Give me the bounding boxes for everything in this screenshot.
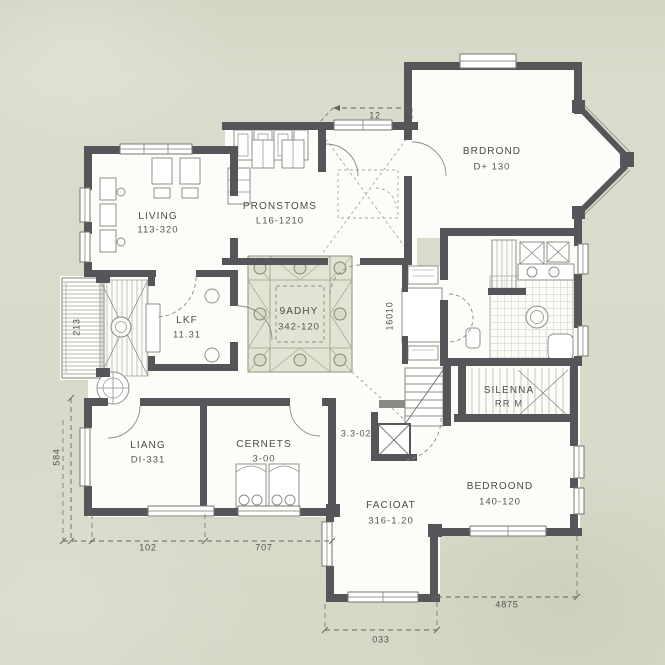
room-label-living: LIVING <box>138 212 177 222</box>
dim-left-side: 584 <box>53 448 62 465</box>
room-dims-courtyard: 342-120 <box>278 322 320 332</box>
stair-area-label: 3.3-02 <box>341 430 371 439</box>
room-dims-facioat: 316-1.20 <box>368 516 414 526</box>
room-label-lkf: LKF <box>176 316 198 326</box>
room-label-facioat: FACIOAT <box>366 501 416 511</box>
room-label-courtyard: 9ADHY <box>280 307 319 317</box>
room-dims-bedroond: 140-120 <box>479 497 521 507</box>
room-dims-lkf: 11.31 <box>173 330 201 340</box>
dim-bottom-right: 4875 <box>495 601 518 610</box>
dim-bottom-left-1: 102 <box>139 544 156 553</box>
room-label-silenna: SILENNA <box>484 386 535 396</box>
room-dims-cernets: 3-00 <box>252 454 275 464</box>
floorplan-drawing <box>0 0 665 665</box>
room-label-liang: LIANG <box>130 441 166 451</box>
dim-entry-width: 12 <box>369 112 381 121</box>
room-label-cernets: CERNETS <box>236 440 291 450</box>
dim-bottom-left-2: 707 <box>255 544 272 553</box>
dim-porch: 033 <box>372 636 389 645</box>
room-label-bedroond: BEDROOND <box>467 482 534 492</box>
room-label-brdrond: BRDROND <box>463 147 521 157</box>
room-label-pronstoms: PRONSTOMS <box>243 202 317 212</box>
dim-hall: 16010 <box>386 301 395 330</box>
room-dims-pronstoms: L16-1210 <box>256 216 304 226</box>
room-dims-living: 113-320 <box>137 225 178 235</box>
room-dims-silenna: RR M <box>495 399 523 409</box>
room-dims-brdrond: D+ 130 <box>474 162 511 172</box>
dim-deck: 213 <box>73 318 82 335</box>
floorplan-canvas: LIVING 113-320 PRONSTOMS L16-1210 BRDRON… <box>0 0 665 665</box>
room-dims-liang: DI-331 <box>131 455 166 465</box>
